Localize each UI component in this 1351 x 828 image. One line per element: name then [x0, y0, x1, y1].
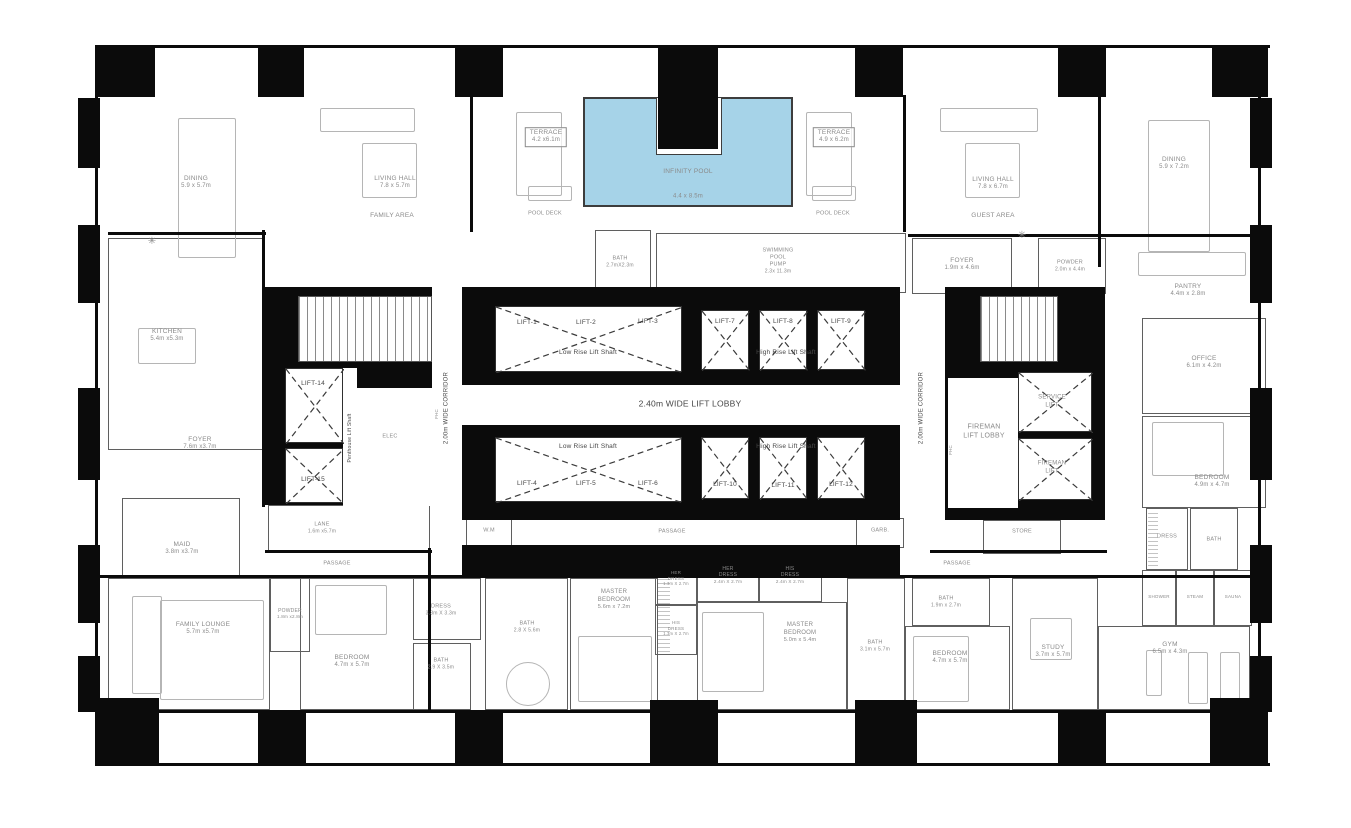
room-label-her-dress: HER DRESS2.4m X 2.7m: [714, 566, 742, 584]
wall: [908, 234, 1250, 237]
furniture: [940, 108, 1038, 132]
label-fhc-left: FHC: [434, 409, 440, 419]
wall: [100, 710, 1252, 713]
room-dimension: 2.7mX2.3m: [606, 262, 634, 268]
room-name: DRESS: [1157, 534, 1177, 540]
room-name: BATH: [519, 620, 534, 626]
lift-shaft-cross-icon: [818, 438, 866, 500]
room-label-bedroom-bottom-right: BEDROOM4.7m x 5.7m: [932, 650, 967, 666]
room-name: BATH: [938, 595, 953, 601]
wall-block: [97, 698, 159, 766]
room-label-dress-right: DRESS: [1157, 534, 1177, 541]
room-label-her-dress-small: HER DRESS1.3m X 2.7m: [663, 570, 689, 586]
room-name: HER DRESS: [668, 570, 685, 581]
label-fireman-lift: FIREMAN LIFT: [1038, 461, 1066, 476]
stair-left: [298, 296, 432, 362]
wall-block: [1250, 98, 1272, 168]
furniture: [160, 600, 264, 700]
room-label-bedroom-right: BEDROOM4.9m x 4.7m: [1194, 474, 1229, 490]
room-dimension: 4.4m x 2.8m: [1170, 291, 1205, 298]
room-label-terrace-left: TERRACE4.2 x6.1m: [525, 127, 567, 147]
wall-block: [455, 712, 503, 766]
room-dimension: 5.6m x 7.2m: [598, 604, 631, 611]
room-label-dress-master: DRESS3.3m X 3.3m: [426, 603, 457, 616]
label-lift-lobby: 2.40m WIDE LIFT LOBBY: [639, 399, 742, 410]
furniture: [1138, 252, 1246, 276]
room-label-shower: SHOWER: [1148, 594, 1169, 600]
room-name: STEAM: [1187, 594, 1204, 599]
label-high-rise-shaft-bottom: High Rise Lift Shaft: [756, 443, 816, 451]
wall: [903, 95, 906, 232]
pool-dimension: 4.4 x 8.5m: [673, 193, 703, 201]
room-name: HIS DRESS: [668, 620, 685, 631]
room-label-his-dress: HIS DRESS2.4m X 2.7m: [776, 566, 804, 584]
wall: [428, 548, 431, 710]
room-label-living-hall-right: LIVING HALL7.8 x 6.7m: [972, 176, 1014, 192]
wall-block: [1250, 545, 1272, 623]
furniture: [702, 612, 764, 692]
room-dimension: 4.7m x 5.7m: [334, 662, 369, 669]
room-dimension: 1.6m x5.7m: [308, 528, 336, 534]
lift-shaft-cross-icon: [496, 307, 683, 373]
room-label-garb: GARB.: [871, 528, 889, 535]
lift-shaft-cross-icon: [702, 438, 750, 500]
stair-right: [980, 296, 1058, 362]
room-name: MASTER BEDROOM: [598, 589, 630, 603]
room-label-bedroom-bottom-left: BEDROOM4.7m x 5.7m: [334, 654, 369, 670]
room-maid: [122, 498, 240, 576]
room-label-bath-top: BATH2.7mX2.3m: [606, 255, 634, 268]
label-corridor-left: 2.00m WIDE CORRIDOR: [443, 372, 451, 444]
wall: [262, 230, 265, 507]
furniture: [1152, 422, 1224, 476]
wall: [470, 95, 473, 232]
room-name: PANTRY: [1175, 283, 1202, 290]
room-label-powder-bottom-left: POWDER1.8m x2.8m: [277, 608, 303, 620]
room-label-his-dress-small: HIS DRESS1.3m X 2.7m: [663, 620, 689, 636]
wall: [1098, 95, 1101, 267]
room-label-bath-gym: BATH: [1206, 537, 1221, 544]
room-name: TERRACE: [530, 129, 562, 136]
room-name: SAUNA: [1225, 594, 1242, 599]
room-name: FOYER: [188, 436, 211, 443]
wall-block: [258, 45, 304, 97]
label-lift-15: LIFT-15: [301, 476, 325, 484]
room-label-pool-pump: SWIMMING POOL PUMP2.3x 11.3m: [763, 248, 794, 275]
room-dimension: 2.8 X 5.6m: [514, 627, 540, 633]
room-name: HER DRESS: [719, 566, 737, 578]
wall-block: [97, 47, 155, 97]
room-dimension: 4.9 x 6.2m: [818, 137, 850, 144]
label-lift-3: LIFT-3: [638, 318, 658, 326]
room-label-bath-master-2: BATH2.9 X 3.5m: [428, 657, 454, 670]
label-fireman-lift-lobby: FIREMAN LIFT LOBBY: [963, 423, 1005, 441]
label-lift-11: LIFT-11: [771, 482, 794, 490]
room-dimension: 6.1m x 4.2m: [1186, 363, 1221, 370]
room-dimension: 2.0m x 4.4m: [1055, 266, 1085, 272]
room-dimension: 1.9m x 2.7m: [931, 602, 961, 608]
room-label-foyer-right: FOYER1.9m x 4.6m: [944, 257, 979, 273]
room-dimension: 5.0m x 5.4m: [784, 637, 817, 644]
room-dimension: 4.9m x 4.7m: [1194, 482, 1229, 489]
room-name: BATH: [612, 255, 627, 261]
label-low-rise-shaft-top: Low Rise Lift Shaft: [559, 349, 617, 357]
room-name: GARB.: [871, 528, 889, 534]
room-label-office: OFFICE6.1m x 4.2m: [1186, 355, 1221, 371]
label-passage-center: PASSAGE: [658, 529, 685, 536]
room-dimension: 5.9 x 7.2m: [1159, 164, 1189, 171]
room-name: W.M: [483, 528, 495, 534]
wall-block: [455, 45, 503, 97]
room-name: HIS DRESS: [781, 566, 799, 578]
room-name: DINING: [1162, 156, 1186, 163]
room-dimension: 7.8 x 6.7m: [972, 184, 1014, 191]
room-dimension: 2.9 X 3.5m: [428, 664, 454, 670]
wall-block: [1250, 388, 1272, 480]
room-name: KITCHEN: [152, 328, 182, 335]
label-lift-14: LIFT-14: [301, 380, 325, 388]
room-label-living-hall-left: LIVING HALL7.8 x 5.7m: [374, 175, 416, 191]
room-label-dining-right: DINING5.9 x 7.2m: [1159, 156, 1189, 172]
wall: [95, 45, 98, 766]
room-name: STUDY: [1041, 644, 1064, 651]
room-label-lane: LANE1.6m x5.7m: [308, 521, 336, 534]
room-label-bath-bedroom-3: BATH1.9m x 2.7m: [931, 595, 961, 608]
furniture: [506, 662, 550, 706]
room-label-gym: GYM6.5m x 4.3m: [1152, 641, 1187, 657]
room-name: STORE: [1012, 529, 1032, 535]
wall-block: [1250, 656, 1272, 712]
room-name: POWDER: [278, 608, 302, 614]
room-label-wm: W.M: [483, 528, 495, 535]
furniture: [320, 108, 415, 132]
wall: [95, 763, 1270, 766]
furniture: [132, 596, 162, 694]
furniture: [1146, 650, 1162, 696]
wall: [108, 232, 266, 235]
room-name: FAMILY LOUNGE: [176, 621, 230, 628]
room-name: SHOWER: [1148, 594, 1169, 599]
label-low-rise-shaft-bottom: Low Rise Lift Shaft: [559, 443, 617, 451]
room-name: SWIMMING POOL PUMP: [763, 248, 794, 268]
room-name: LIVING HALL: [972, 176, 1014, 183]
label-elec: ELEC: [382, 434, 397, 441]
room-name: BATH: [433, 657, 448, 663]
room-label-dining-left: DINING5.9 x 5.7m: [181, 175, 211, 191]
room-dimension: 2.3x 11.3m: [763, 268, 794, 274]
fireman-lobby-room: [948, 378, 1018, 508]
room-label-master-bedroom: MASTER BEDROOM5.6m x 7.2m: [598, 589, 631, 611]
label-family-area: FAMILY AREA: [370, 212, 414, 220]
label-pool-deck-right: POOL DECK: [816, 211, 850, 218]
label-passage-left: PASSAGE: [323, 561, 350, 568]
label-plant-left: ✳: [148, 236, 157, 249]
label-corridor-right: 2.00m WIDE CORRIDOR: [918, 372, 926, 444]
pool-label: INFINITY POOL: [663, 168, 712, 176]
furniture: [812, 186, 856, 201]
room-name: DINING: [184, 175, 208, 182]
room-dimension: 2.4m X 2.7m: [776, 578, 804, 584]
room-name: DRESS: [431, 603, 451, 609]
room-name: LANE: [314, 521, 329, 527]
label-lift-10: LIFT-10: [713, 481, 737, 489]
wall: [930, 550, 1107, 553]
room-label-terrace-right: TERRACE4.9 x 6.2m: [813, 127, 855, 147]
wall-block: [258, 712, 306, 766]
furniture: [1148, 120, 1210, 252]
furniture: [578, 636, 652, 702]
wall-block: [658, 45, 718, 149]
room-name: GYM: [1162, 641, 1177, 648]
room-label-bath-master-bedroom-2: BATH3.1m x 5.7m: [860, 639, 890, 652]
label-lift-1: LIFT-1: [517, 319, 537, 327]
furniture: [516, 112, 562, 196]
furniture: [913, 636, 969, 702]
room-store: [983, 520, 1061, 554]
room-label-master-bedroom-2: MASTER BEDROOM5.0m x 5.4m: [784, 622, 817, 644]
room-name: BATH: [1206, 537, 1221, 543]
label-lift-12: LIFT-12: [829, 481, 853, 489]
furniture: [1220, 652, 1240, 704]
room-dimension: 5.7m x5.7m: [176, 629, 230, 636]
room-name: BEDROOM: [932, 650, 967, 657]
room-lane: [268, 505, 430, 552]
room-dimension: 7.6m x3.7m: [183, 444, 216, 451]
room-label-steam: STEAM: [1187, 594, 1204, 600]
label-fhc-right: FHC: [948, 445, 954, 455]
room-dimension: 1.3m X 2.7m: [663, 581, 689, 586]
room-label-pantry: PANTRY4.4m x 2.8m: [1170, 283, 1205, 299]
wall-block: [1250, 225, 1272, 303]
room-label-store: STORE: [1012, 529, 1032, 536]
wall-block: [1058, 712, 1106, 766]
label-lift-8: LIFT-8: [773, 318, 793, 326]
room-dimension: 5.4m x5.3m: [150, 336, 183, 343]
lift-12-shaft: [817, 437, 865, 499]
furniture: [806, 112, 852, 196]
label-service-lift: SERVICE LIFT: [1038, 395, 1066, 410]
label-guest-area: GUEST AREA: [971, 212, 1014, 220]
low-rise-shaft-top: [495, 306, 682, 372]
room-dimension: 5.9 x 5.7m: [181, 183, 211, 190]
label-passage-right: PASSAGE: [943, 561, 970, 568]
label-high-rise-shaft-top: High Rise Lift Shaft: [756, 349, 816, 357]
label-lift-4: LIFT-4: [517, 480, 537, 488]
label-lift-6: LIFT-6: [638, 480, 658, 488]
room-dimension: 1.8m x2.8m: [277, 614, 303, 620]
room-name: POWDER: [1057, 259, 1083, 265]
wall: [1258, 45, 1261, 766]
room-dimension: 4.2 x6.1m: [530, 137, 562, 144]
room-dimension: 7.8 x 5.7m: [374, 183, 416, 190]
furniture: [315, 585, 387, 635]
wall-block: [855, 45, 903, 97]
room-dimension: 1.3m X 2.7m: [663, 631, 689, 636]
room-dimension: 3.3m X 3.3m: [426, 610, 457, 616]
room-name: OFFICE: [1191, 355, 1216, 362]
room-name: FOYER: [950, 257, 973, 264]
room-label-maid: MAID3.8m x3.7m: [165, 541, 198, 557]
room-bath-master-2: [413, 643, 471, 710]
elec-room: [352, 388, 432, 506]
room-dimension: 6.5m x 4.3m: [1152, 649, 1187, 656]
label-lift-5: LIFT-5: [576, 480, 596, 488]
room-dimension: 1.9m x 4.6m: [944, 265, 979, 272]
floor-plan: DINING5.9 x 5.7mLIVING HALL7.8 x 5.7mTER…: [0, 0, 1351, 828]
label-plant-right: ✳: [1018, 230, 1027, 243]
room-dimension: 2.4m X 2.7m: [714, 578, 742, 584]
label-lift-9: LIFT-9: [831, 318, 851, 326]
room-dimension: 3.1m x 5.7m: [860, 646, 890, 652]
room-label-study: STUDY3.7m x 5.7m: [1035, 644, 1070, 660]
room-label-foyer-left: FOYER7.6m x3.7m: [183, 436, 216, 452]
room-name: LIVING HALL: [374, 175, 416, 182]
room-dimension: 4.7m x 5.7m: [932, 658, 967, 665]
room-label-family-lounge: FAMILY LOUNGE5.7m x5.7m: [176, 621, 230, 637]
wall: [95, 45, 1270, 48]
lift-10-shaft: [701, 437, 749, 499]
label-lift-7: LIFT-7: [715, 318, 735, 326]
wall-block: [1058, 45, 1106, 97]
label-pool-deck-left: POOL DECK: [528, 211, 562, 218]
room-label-powder-right: POWDER2.0m x 4.4m: [1055, 259, 1085, 272]
furniture: [1188, 652, 1208, 704]
room-name: BATH: [867, 639, 882, 645]
room-name: MAID: [173, 541, 190, 548]
label-penthouse-lift-shaft: Penthouse Lift Shaft: [347, 413, 353, 462]
wall: [265, 550, 432, 553]
room-name: TERRACE: [818, 129, 850, 136]
room-label-bath-master: BATH2.8 X 5.6m: [514, 620, 540, 633]
room-label-sauna: SAUNA: [1225, 594, 1242, 600]
room-name: BEDROOM: [334, 654, 369, 661]
room-dimension: 3.8m x3.7m: [165, 549, 198, 556]
label-lift-2: LIFT-2: [576, 319, 596, 327]
room-name: MASTER BEDROOM: [784, 622, 816, 636]
room-name: BEDROOM: [1194, 474, 1229, 481]
furniture: [528, 186, 572, 201]
room-label-kitchen: KITCHEN5.4m x5.3m: [150, 328, 183, 344]
room-dimension: 3.7m x 5.7m: [1035, 652, 1070, 659]
